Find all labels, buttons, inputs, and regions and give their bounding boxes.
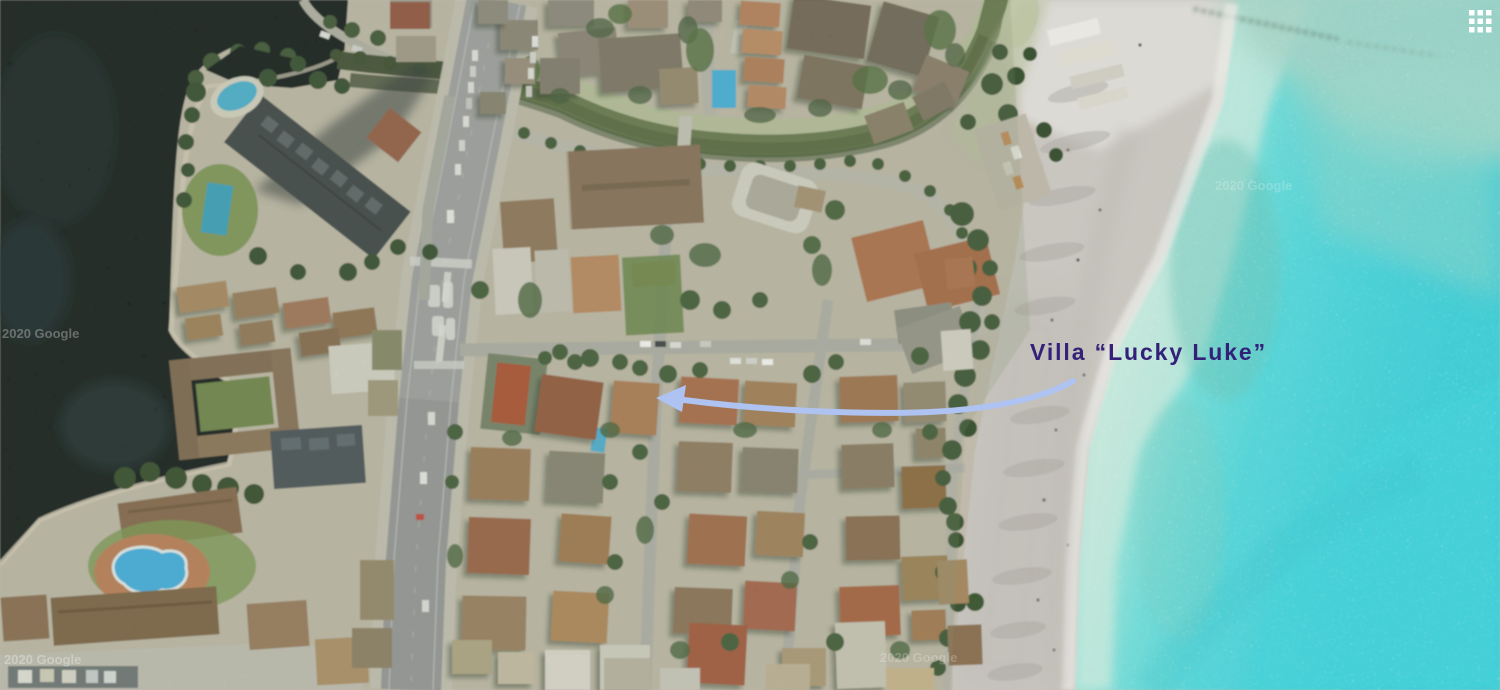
svg-text:2020 Google: 2020 Google [2,326,79,341]
svg-text:2020 Google: 2020 Google [880,650,957,665]
svg-text:Villa “Lucky Luke”: Villa “Lucky Luke” [1030,339,1267,365]
svg-text:2020 Google: 2020 Google [4,652,81,667]
svg-text:2020 Google: 2020 Google [1215,178,1292,193]
